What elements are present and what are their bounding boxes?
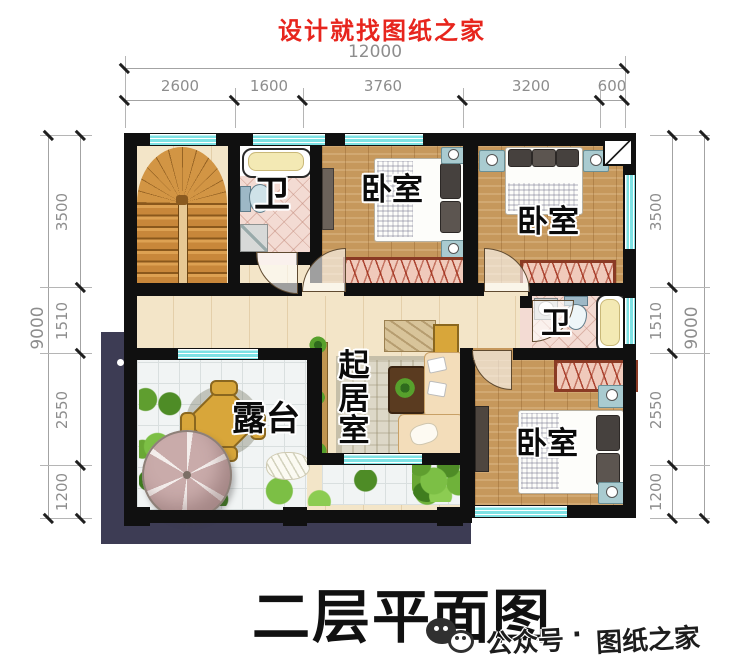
dimension-segment: 3200 [496, 77, 566, 95]
lamp [448, 149, 459, 160]
staircase-newel [176, 195, 188, 205]
interior-wall [463, 146, 478, 283]
lamp [606, 389, 618, 401]
dresser [475, 406, 489, 472]
room-label-bathroom: 卫 [250, 176, 294, 214]
room-label-bathroom: 卫 [536, 308, 576, 340]
window [344, 454, 422, 464]
staircase-flight [186, 203, 227, 290]
terrace-chair [210, 380, 238, 396]
flue-shaft [603, 139, 633, 166]
dimension-segment: 3500 [53, 188, 71, 236]
wechat-eye [462, 636, 466, 640]
lamp [448, 243, 459, 254]
extension-line [235, 88, 236, 128]
side-stool [433, 324, 459, 354]
room-label-bedroom: 卧室 [344, 174, 440, 207]
staircase-rail [178, 200, 188, 290]
dimension-line [48, 135, 49, 518]
bathtub-basin [600, 299, 620, 346]
staircase-flight [137, 203, 178, 290]
page-title: 设计就找图纸之家 [278, 11, 486, 46]
room-label-bedroom: 卧室 [506, 206, 590, 239]
floor-plan-page: 设计就找图纸之家 12000 2600 1600 3760 3200 600 9… [0, 0, 750, 659]
table-plant [394, 377, 416, 399]
umbrella-pole [183, 471, 191, 479]
wechat-eye [434, 626, 439, 631]
dimension-segment: 1510 [53, 297, 71, 345]
room-label-terrace: 露台 [226, 402, 306, 438]
extension-line [650, 287, 710, 288]
dimension-segment: 3760 [348, 77, 418, 95]
interior-wall [460, 348, 475, 508]
planter [266, 452, 310, 480]
bed-pillow [440, 201, 461, 233]
bed-pillow [440, 163, 461, 199]
dimension-segment: 1510 [647, 297, 665, 345]
roof-dot [117, 359, 124, 366]
parapet-post [124, 507, 150, 526]
extension-line [600, 88, 601, 128]
bed-pillow [596, 415, 620, 451]
dimension-line [125, 100, 625, 101]
room-label-bedroom: 卧室 [502, 428, 592, 461]
dimension-line [672, 135, 673, 518]
window [253, 134, 325, 145]
sofa-pillow [427, 381, 447, 398]
interior-wall [135, 283, 624, 296]
dimension-segment: 1600 [234, 77, 304, 95]
extension-line [463, 88, 464, 128]
extension-line [303, 88, 304, 128]
dresser [322, 168, 334, 230]
wechat-bubble-small [448, 630, 474, 653]
exterior-wall [124, 133, 137, 525]
dimension-line [704, 135, 705, 518]
shower-tray [240, 224, 268, 252]
wechat-eye [455, 636, 459, 640]
window [625, 298, 635, 344]
wechat-eye [443, 626, 448, 631]
bed-pillow [508, 149, 532, 167]
bed-pillow [596, 453, 620, 485]
window [475, 506, 567, 517]
window [178, 349, 258, 359]
dimension-total-top: 12000 [335, 42, 415, 62]
lamp [606, 486, 618, 498]
dimension-segment: 2600 [145, 77, 215, 95]
dimension-segment: 3500 [647, 188, 665, 236]
dimension-total-left: 9000 [28, 304, 48, 352]
dimension-segment: 2550 [647, 386, 665, 434]
extension-line [650, 353, 710, 354]
extension-line [40, 353, 92, 354]
door-opening [520, 308, 532, 348]
bed-pillow [556, 149, 579, 167]
tv-cabinet [384, 320, 436, 352]
dimension-segment: 600 [592, 77, 632, 95]
separator-dot: · [571, 620, 582, 650]
extension-line [650, 465, 710, 466]
extension-line [40, 465, 92, 466]
brand-name: 图纸之家 [595, 617, 701, 659]
bathtub-basin [248, 152, 304, 171]
dimension-line [80, 135, 81, 518]
window [345, 134, 423, 145]
dimension-total-right: 9000 [682, 304, 702, 352]
dimension-segment: 1200 [647, 468, 665, 516]
dimension-segment: 1200 [53, 468, 71, 516]
window [625, 175, 635, 249]
interior-wall [307, 348, 322, 465]
parapet-post [437, 507, 463, 526]
extension-line [650, 135, 710, 136]
bed-pillow [532, 149, 556, 167]
dimension-segment: 2550 [53, 386, 71, 434]
lamp [486, 154, 498, 166]
window [150, 134, 216, 145]
extension-line [40, 287, 92, 288]
wechat-icon [426, 618, 474, 658]
extension-line [650, 518, 710, 519]
room-label-living-room: 起居室 [336, 350, 372, 448]
lamp [590, 154, 602, 166]
wechat-account-label: 公众号 [485, 620, 565, 659]
parapet-post [283, 507, 307, 526]
dimension-line [125, 68, 625, 69]
